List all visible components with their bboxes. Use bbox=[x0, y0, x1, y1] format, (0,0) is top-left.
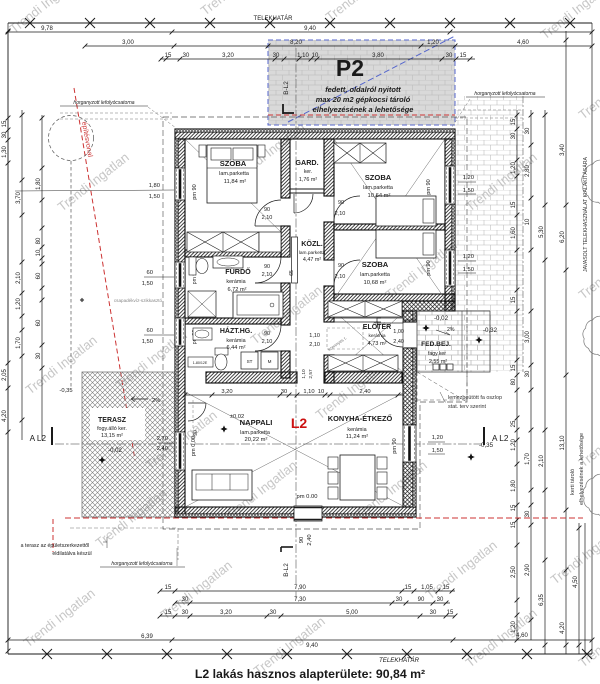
svg-text:elhelyezésének a lehetősége: elhelyezésének a lehetősége bbox=[579, 433, 585, 505]
svg-text:L2: L2 bbox=[291, 415, 308, 431]
svg-text:fogy.álló ker.: fogy.álló ker. bbox=[97, 426, 127, 432]
svg-text:HÁZT.HG.: HÁZT.HG. bbox=[220, 326, 252, 335]
svg-text:1,20: 1,20 bbox=[427, 40, 439, 46]
svg-text:30: 30 bbox=[2, 131, 8, 138]
svg-text:KONYHA-ÉTKEZŐ: KONYHA-ÉTKEZŐ bbox=[328, 414, 393, 423]
svg-text:60: 60 bbox=[36, 272, 42, 279]
svg-text:2,40: 2,40 bbox=[307, 534, 313, 545]
svg-text:10: 10 bbox=[312, 53, 319, 59]
svg-text:15: 15 bbox=[165, 53, 172, 59]
svg-text:3,20: 3,20 bbox=[222, 53, 234, 59]
svg-text:10: 10 bbox=[318, 389, 324, 395]
svg-text:1,50: 1,50 bbox=[149, 194, 160, 200]
svg-text:horganyzott lefolyócsatorna: horganyzott lefolyócsatorna bbox=[474, 91, 535, 97]
svg-text:1,30: 1,30 bbox=[2, 146, 8, 158]
svg-text:30: 30 bbox=[430, 610, 437, 616]
svg-text:60: 60 bbox=[147, 328, 153, 334]
svg-text:15: 15 bbox=[511, 296, 517, 303]
svg-text:kerámia: kerámia bbox=[226, 279, 245, 285]
svg-text:eldilatálva készül: eldilatálva készül bbox=[52, 551, 91, 557]
svg-text:SZOBA: SZOBA bbox=[220, 159, 247, 168]
svg-text:SZOBA: SZOBA bbox=[362, 260, 389, 269]
svg-text:2,10: 2,10 bbox=[262, 339, 273, 345]
svg-text:11,24 m²: 11,24 m² bbox=[346, 434, 369, 440]
svg-text:9,78: 9,78 bbox=[41, 26, 53, 32]
svg-text:2,10: 2,10 bbox=[335, 211, 346, 217]
svg-text:15: 15 bbox=[511, 201, 517, 208]
svg-text:3,70: 3,70 bbox=[16, 192, 22, 204]
svg-text:TELEKHATÁR: TELEKHATÁR bbox=[379, 657, 420, 664]
svg-text:A L2: A L2 bbox=[30, 434, 47, 443]
svg-text:2,05: 2,05 bbox=[2, 369, 8, 381]
svg-text:pm 0.00: pm 0.00 bbox=[297, 494, 318, 500]
svg-text:max 20 m2 gépkocsi tároló: max 20 m2 gépkocsi tároló bbox=[316, 95, 411, 104]
svg-text:2,10: 2,10 bbox=[539, 455, 545, 467]
svg-text:15: 15 bbox=[2, 120, 8, 127]
svg-text:2,57: 2,57 bbox=[308, 369, 314, 379]
svg-text:6,44 m²: 6,44 m² bbox=[227, 345, 246, 351]
svg-text:ker.: ker. bbox=[304, 169, 312, 175]
svg-text:4,50: 4,50 bbox=[573, 576, 579, 588]
svg-text:pm 90: pm 90 bbox=[426, 260, 432, 276]
svg-text:1,50: 1,50 bbox=[463, 188, 474, 194]
svg-text:2,40: 2,40 bbox=[157, 446, 168, 452]
svg-text:ST: ST bbox=[247, 359, 253, 364]
svg-text:10,64 m²: 10,64 m² bbox=[368, 193, 391, 199]
svg-text:1,50: 1,50 bbox=[142, 339, 153, 345]
svg-text:1,20: 1,20 bbox=[511, 621, 517, 633]
svg-text:3,40: 3,40 bbox=[560, 144, 566, 156]
svg-text:90: 90 bbox=[299, 537, 305, 543]
svg-text:2%: 2% bbox=[152, 398, 160, 404]
svg-text:80: 80 bbox=[511, 378, 517, 385]
svg-text:1,50: 1,50 bbox=[463, 267, 474, 273]
svg-text:1,80: 1,80 bbox=[149, 183, 160, 189]
svg-text:1,20: 1,20 bbox=[511, 439, 517, 451]
svg-text:fagy.ker: fagy.ker bbox=[428, 351, 446, 357]
svg-text:TERASZ: TERASZ bbox=[98, 417, 127, 424]
svg-text:2,10: 2,10 bbox=[335, 274, 346, 280]
svg-text:lam.parketta: lam.parketta bbox=[219, 171, 249, 177]
svg-text:FÜRDŐ: FÜRDŐ bbox=[225, 267, 251, 276]
svg-text:6,20: 6,20 bbox=[560, 231, 566, 243]
svg-text:15: 15 bbox=[460, 53, 467, 59]
svg-text:9,40: 9,40 bbox=[304, 26, 316, 32]
svg-text:90: 90 bbox=[338, 200, 344, 206]
svg-text:30: 30 bbox=[525, 370, 531, 377]
svg-text:1,00: 1,00 bbox=[393, 329, 404, 335]
svg-text:30: 30 bbox=[36, 352, 42, 359]
svg-text:6,39: 6,39 bbox=[141, 634, 153, 640]
svg-text:kerámia: kerámia bbox=[226, 338, 245, 344]
svg-text:9,40: 9,40 bbox=[306, 643, 318, 649]
svg-text:90: 90 bbox=[193, 430, 199, 436]
svg-text:4,73 m²: 4,73 m² bbox=[368, 341, 387, 347]
svg-text:1,20: 1,20 bbox=[463, 254, 474, 260]
svg-text:1-80/12E: 1-80/12E bbox=[193, 361, 208, 365]
svg-text:A L2: A L2 bbox=[492, 434, 509, 443]
svg-text:pm 90: pm 90 bbox=[392, 438, 398, 454]
svg-text:1,50: 1,50 bbox=[432, 448, 443, 454]
svg-text:1,76 m²: 1,76 m² bbox=[299, 177, 317, 183]
svg-text:3,20: 3,20 bbox=[220, 610, 232, 616]
svg-text:M: M bbox=[268, 359, 272, 364]
svg-text:a terasz az épületszerkezettől: a terasz az épületszerkezettől bbox=[21, 543, 90, 549]
svg-text:ELŐTÉR: ELŐTÉR bbox=[363, 322, 391, 331]
svg-text:15: 15 bbox=[443, 585, 450, 591]
svg-text:30: 30 bbox=[273, 53, 280, 59]
svg-text:30: 30 bbox=[270, 610, 277, 616]
svg-text:2,10: 2,10 bbox=[262, 272, 273, 278]
svg-text:1,10: 1,10 bbox=[309, 333, 320, 339]
svg-text:10: 10 bbox=[525, 218, 531, 225]
svg-text:stat. terv szerint: stat. terv szerint bbox=[448, 404, 487, 410]
svg-text:4,20: 4,20 bbox=[560, 622, 566, 634]
svg-text:20,22 m²: 20,22 m² bbox=[245, 437, 268, 443]
svg-text:2,10: 2,10 bbox=[16, 272, 22, 284]
svg-text:NAPPALI: NAPPALI bbox=[240, 418, 273, 427]
svg-text:3,00: 3,00 bbox=[525, 331, 531, 343]
svg-text:GARD.: GARD. bbox=[295, 158, 318, 167]
svg-text:4,60: 4,60 bbox=[516, 633, 528, 639]
svg-text:90: 90 bbox=[418, 597, 425, 603]
svg-text:30: 30 bbox=[437, 597, 444, 603]
svg-text:2,40: 2,40 bbox=[393, 339, 404, 345]
svg-text:4,60: 4,60 bbox=[517, 40, 529, 46]
svg-text:4,47 m²: 4,47 m² bbox=[303, 257, 321, 263]
svg-text:1,05: 1,05 bbox=[421, 585, 433, 591]
svg-text:pm 0,00: pm 0,00 bbox=[191, 436, 197, 456]
svg-text:8,20: 8,20 bbox=[290, 40, 302, 46]
svg-text:30: 30 bbox=[446, 53, 453, 59]
svg-text:TELEKHATÁR: TELEKHATÁR bbox=[254, 15, 294, 22]
svg-text:13,10: 13,10 bbox=[560, 435, 566, 451]
svg-text:1,80: 1,80 bbox=[36, 178, 42, 190]
svg-text:5,00: 5,00 bbox=[346, 610, 358, 616]
svg-text:60: 60 bbox=[36, 319, 42, 326]
svg-text:2,90: 2,90 bbox=[525, 564, 531, 576]
svg-text:pm 90: pm 90 bbox=[426, 179, 432, 195]
svg-text:90: 90 bbox=[264, 207, 270, 213]
svg-text:1,20: 1,20 bbox=[16, 298, 22, 310]
svg-text:2,80: 2,80 bbox=[525, 165, 531, 177]
svg-text:pm 90: pm 90 bbox=[192, 184, 198, 200]
svg-text:JAVASOLT TELEKHASZNÁLAT KIALAK: JAVASOLT TELEKHASZNÁLAT KIALAKÍTÁSÁRA bbox=[582, 157, 589, 272]
svg-text:kerámia: kerámia bbox=[347, 427, 366, 433]
svg-text:2,10: 2,10 bbox=[309, 342, 320, 348]
svg-text:B-L2: B-L2 bbox=[283, 81, 290, 95]
svg-text:15: 15 bbox=[511, 504, 517, 511]
svg-text:1,10: 1,10 bbox=[303, 389, 314, 395]
svg-text:10: 10 bbox=[36, 249, 42, 256]
svg-text:30: 30 bbox=[525, 127, 531, 134]
svg-text:-0,02: -0,02 bbox=[108, 448, 122, 454]
svg-text:2,55 m²: 2,55 m² bbox=[429, 359, 447, 365]
svg-text:30: 30 bbox=[525, 510, 531, 517]
svg-text:90: 90 bbox=[264, 264, 270, 270]
svg-text:horganyzott lefolyócsatorna: horganyzott lefolyócsatorna bbox=[111, 561, 172, 567]
svg-text:30: 30 bbox=[182, 610, 189, 616]
svg-text:1,20: 1,20 bbox=[463, 175, 474, 181]
svg-text:3,00: 3,00 bbox=[122, 40, 134, 46]
svg-text:FED.BEJ.: FED.BEJ. bbox=[421, 341, 451, 348]
svg-text:80: 80 bbox=[36, 237, 42, 244]
svg-text:15: 15 bbox=[447, 610, 454, 616]
svg-text:-0,02: -0,02 bbox=[434, 315, 449, 322]
svg-text:15: 15 bbox=[165, 585, 172, 591]
svg-text:lam.parketta: lam.parketta bbox=[360, 272, 390, 278]
svg-text:13,15 m²: 13,15 m² bbox=[101, 433, 123, 439]
svg-text:90: 90 bbox=[264, 331, 270, 337]
svg-text:1,60: 1,60 bbox=[511, 227, 517, 239]
svg-text:csapadékvíz-szikkasztó: csapadékvíz-szikkasztó bbox=[114, 298, 163, 303]
svg-text:1,20: 1,20 bbox=[432, 435, 443, 441]
svg-text:horganyzott lefolyócsatorna: horganyzott lefolyócsatorna bbox=[73, 100, 134, 106]
svg-text:±0,02: ±0,02 bbox=[230, 414, 244, 420]
svg-text:-0,32: -0,32 bbox=[483, 327, 498, 334]
svg-text:90: 90 bbox=[338, 263, 344, 269]
svg-text:15: 15 bbox=[511, 521, 517, 528]
svg-text:30: 30 bbox=[511, 132, 517, 139]
svg-text:1,70: 1,70 bbox=[525, 453, 531, 465]
svg-text:3,20: 3,20 bbox=[221, 389, 232, 395]
svg-text:15: 15 bbox=[165, 610, 172, 616]
svg-text:11,84 m²: 11,84 m² bbox=[224, 179, 247, 185]
svg-text:60: 60 bbox=[147, 270, 153, 276]
svg-text:25: 25 bbox=[511, 420, 517, 427]
svg-text:15: 15 bbox=[405, 585, 412, 591]
svg-text:elhelyezésének a lehetősége: elhelyezésének a lehetősége bbox=[313, 105, 414, 114]
svg-text:1,80: 1,80 bbox=[511, 480, 517, 492]
svg-text:1,10: 1,10 bbox=[301, 369, 307, 379]
svg-text:2%: 2% bbox=[447, 327, 455, 333]
svg-text:6,72 m²: 6,72 m² bbox=[228, 287, 247, 293]
svg-text:L2 lakás hasznos alapterülete:: L2 lakás hasznos alapterülete: 90,84 m² bbox=[195, 667, 425, 681]
svg-text:fedett, oldalról nyitott: fedett, oldalról nyitott bbox=[325, 85, 401, 94]
svg-text:1,10: 1,10 bbox=[297, 53, 309, 59]
svg-text:1,20: 1,20 bbox=[511, 162, 517, 174]
svg-text:KÖZL.: KÖZL. bbox=[301, 239, 323, 248]
svg-text:30: 30 bbox=[396, 597, 403, 603]
svg-text:lam.parketta: lam.parketta bbox=[299, 250, 326, 256]
svg-text:2,10: 2,10 bbox=[262, 215, 273, 221]
svg-text:SZOBA: SZOBA bbox=[365, 173, 392, 182]
svg-text:5,30: 5,30 bbox=[539, 226, 545, 238]
svg-text:30: 30 bbox=[183, 53, 190, 59]
svg-text:10,68 m²: 10,68 m² bbox=[364, 280, 387, 286]
svg-text:-0,35: -0,35 bbox=[59, 388, 72, 394]
svg-text:1,70: 1,70 bbox=[16, 337, 22, 349]
svg-text:lam.parketta: lam.parketta bbox=[363, 185, 393, 191]
svg-text:15: 15 bbox=[511, 118, 517, 125]
svg-text:kerámia: kerámia bbox=[368, 333, 385, 339]
svg-text:-0,35: -0,35 bbox=[479, 442, 494, 449]
svg-text:kerti tároló: kerti tároló bbox=[570, 469, 576, 495]
svg-text:B-L2: B-L2 bbox=[283, 563, 290, 577]
svg-text:lam.parketta: lam.parketta bbox=[240, 430, 270, 436]
svg-text:15: 15 bbox=[511, 364, 517, 371]
svg-text:1,50: 1,50 bbox=[142, 281, 153, 287]
svg-text:2,70: 2,70 bbox=[157, 436, 168, 442]
svg-text:6,35: 6,35 bbox=[539, 594, 545, 606]
svg-text:3,80: 3,80 bbox=[372, 53, 384, 59]
svg-text:30: 30 bbox=[182, 597, 189, 603]
svg-text:4,20: 4,20 bbox=[2, 410, 8, 422]
svg-text:30: 30 bbox=[281, 389, 287, 395]
svg-text:2,50: 2,50 bbox=[511, 566, 517, 578]
svg-text:2,40: 2,40 bbox=[359, 389, 370, 395]
svg-text:65: 65 bbox=[289, 270, 295, 276]
